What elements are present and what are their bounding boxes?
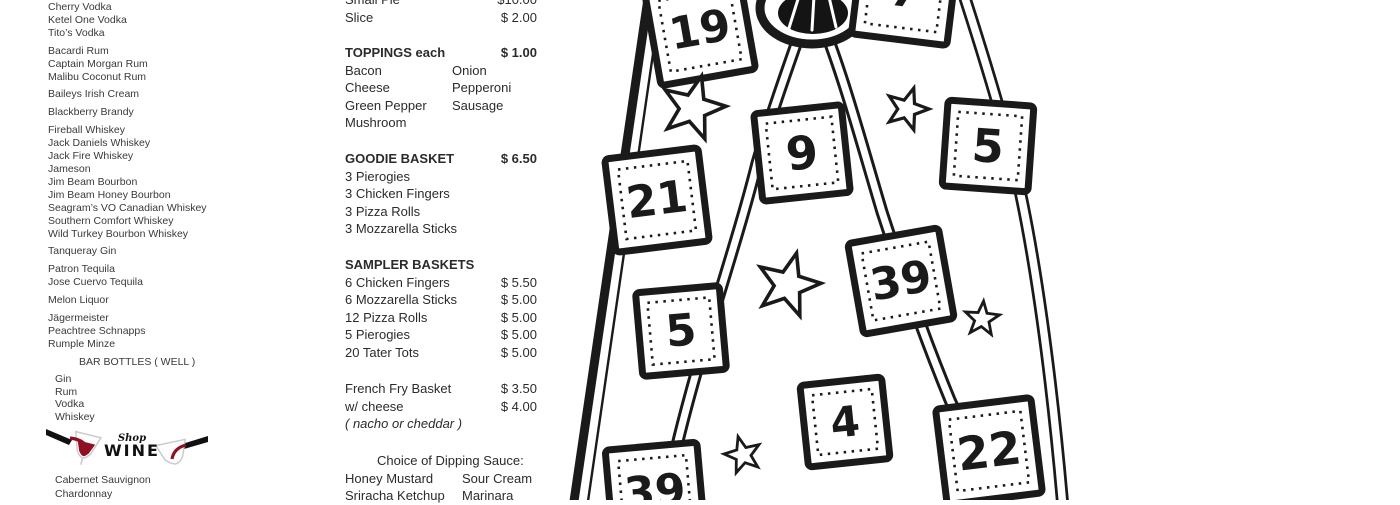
number-ribbons-illustration: 19 7 9 5 21 39 5: [555, 0, 1400, 500]
toppings-row: Green Pepper Sausage: [345, 97, 537, 115]
liquor-group-liquor: Melon Liquor: [48, 294, 313, 307]
liquor-item: Captain Morgan Rum: [48, 58, 313, 71]
section-heading: Choice of Dipping Sauce:: [377, 452, 537, 470]
liquor-item: Melon Liquor: [48, 294, 313, 307]
goodie-basket-section: GOODIE BASKET $ 6.50 3 Pierogies 3 Chick…: [345, 150, 537, 238]
menu-row: 6 Mozzarella Sticks $ 5.00: [345, 291, 537, 309]
topping: Green Pepper: [345, 97, 452, 115]
liquor-group-rum: Bacardi Rum Captain Morgan Rum Malibu Co…: [48, 45, 313, 84]
liquor-item: Tito’s Vodka: [48, 27, 313, 40]
wine-glasses-icon: Shop WINE: [46, 426, 208, 466]
item-label: 3 Pizza Rolls: [345, 203, 420, 221]
number-tag-39-bottom: 39: [605, 442, 705, 500]
liquor-item: Jack Daniels Whiskey: [48, 137, 313, 150]
star-icon: [751, 245, 827, 319]
item-price: $ 5.00: [501, 291, 537, 309]
item-price: $ 6.50: [501, 150, 537, 168]
ring-icon: [760, 0, 864, 44]
tag-number: 9: [783, 124, 820, 181]
liquor-item: Patron Tequila: [48, 263, 313, 276]
item-price: $ 5.00: [501, 344, 537, 362]
topping: Mushroom: [345, 114, 452, 132]
menu-row: 3 Chicken Fingers: [345, 185, 537, 203]
menu-row: 5 Pierogies $ 5.00: [345, 326, 537, 344]
well-bottle-list: Gin Rum Vodka Whiskey: [55, 373, 313, 425]
menu-row: French Fry Basket $ 3.50: [345, 380, 537, 398]
tag-number: 21: [624, 171, 691, 229]
sauce-row: Sriracha Ketchup Marinara: [345, 487, 537, 505]
item-label: French Fry Basket: [345, 380, 451, 398]
liquor-item: Jack Fire Whiskey: [48, 150, 313, 163]
item-label: 20 Tater Tots: [345, 344, 419, 362]
item-label: 3 Mozzarella Sticks: [345, 220, 457, 238]
item-price: $ 5.00: [501, 326, 537, 344]
well-item: Vodka: [55, 398, 313, 411]
liquor-group-schnapps: Jägermeister Peachtree Schnapps Rumple M…: [48, 312, 313, 351]
menu-row: 3 Mozzarella Sticks: [345, 220, 537, 238]
sauce: Sour Cream: [462, 470, 532, 488]
tag-number: 22: [954, 420, 1024, 481]
liquor-item: Blackberry Brandy: [48, 106, 313, 119]
star-icon: [882, 82, 934, 133]
liquor-item: Fireball Whiskey: [48, 124, 313, 137]
tag-number: 19: [665, 0, 734, 60]
topping: Pepperoni: [452, 79, 511, 97]
section-heading: TOPPINGS each: [345, 44, 445, 62]
topping: Sausage: [452, 97, 503, 115]
liquor-item: Bacardi Rum: [48, 45, 313, 58]
number-tag-4: 4: [800, 377, 890, 467]
item-price: $ 4.00: [501, 398, 537, 416]
liquor-group-whiskey: Fireball Whiskey Jack Daniels Whiskey Ja…: [48, 124, 313, 240]
well-item: Rum: [55, 386, 313, 399]
item-price: $ 5.50: [501, 274, 537, 292]
menu-row: 3 Pizza Rolls: [345, 203, 537, 221]
liquor-list: Cherry Vodka Ketel One Vodka Tito’s Vodk…: [48, 1, 313, 501]
wine-item: Cabernet Sauvignon: [55, 474, 313, 488]
topping: Onion: [452, 62, 487, 80]
sauce: Sriracha Ketchup: [345, 487, 462, 505]
section-heading-row: TOPPINGS each $ 1.00: [345, 44, 537, 62]
ribbons-and-number-tags-drawing: 19 7 9 5 21 39 5: [555, 0, 1400, 500]
item-label: 5 Pierogies: [345, 326, 410, 344]
liquor-item: Baileys Irish Cream: [48, 88, 313, 101]
number-tag-39-right: 39: [848, 228, 955, 335]
item-label: 3 Chicken Fingers: [345, 185, 450, 203]
menu-row: Small Pie $10.00: [345, 0, 537, 9]
item-label: 3 Pierogies: [345, 168, 410, 186]
number-tag-5-left: 5: [635, 285, 726, 376]
liquor-item: Jim Beam Honey Bourbon: [48, 189, 313, 202]
sauce: Honey Mustard: [345, 470, 462, 488]
number-tag-5-right: 5: [942, 100, 1034, 192]
liquor-item: Southern Comfort Whiskey: [48, 215, 313, 228]
liquor-item: Malibu Coconut Rum: [48, 71, 313, 84]
liquor-group-tequila: Patron Tequila Jose Cuervo Tequila: [48, 263, 313, 289]
wine-list: Cabernet Sauvignon Chardonnay: [55, 474, 313, 501]
item-price: $ 2.00: [501, 9, 537, 27]
star-icon: [721, 432, 765, 475]
tag-number: 5: [664, 304, 699, 357]
shop-wine-logo: Shop WINE: [46, 426, 313, 470]
item-price: $ 3.50: [501, 380, 537, 398]
well-item: Gin: [55, 373, 313, 386]
item-label: Small Pie: [345, 0, 400, 9]
topping: Bacon: [345, 62, 452, 80]
tag-number: 39: [866, 251, 935, 312]
sampler-baskets-section: SAMPLER BASKETS 6 Chicken Fingers $ 5.50…: [345, 256, 537, 362]
toppings-section: TOPPINGS each $ 1.00 Bacon Onion Cheese …: [345, 44, 537, 132]
toppings-row: Bacon Onion: [345, 62, 537, 80]
number-tag-19: 19: [644, 0, 755, 86]
section-heading-row: SAMPLER BASKETS: [345, 256, 537, 274]
menu-row: 3 Pierogies: [345, 168, 537, 186]
tag-number: 39: [622, 464, 687, 500]
menu-row: w/ cheese $ 4.00: [345, 398, 537, 416]
dipping-sauce-section: Choice of Dipping Sauce: Honey Mustard S…: [345, 452, 537, 505]
liquor-group-vodka: Cherry Vodka Ketel One Vodka Tito’s Vodk…: [48, 1, 313, 40]
sauce: Marinara: [462, 487, 513, 505]
item-price: $10.00: [497, 0, 537, 9]
toppings-row: Cheese Pepperoni: [345, 79, 537, 97]
number-tag-9: 9: [754, 105, 851, 202]
menu-row: Slice $ 2.00: [345, 9, 537, 27]
liquor-group-cream: Baileys Irish Cream: [48, 88, 313, 101]
tag-number: 5: [970, 118, 1006, 174]
food-menu: Small Pie $10.00 Slice $ 2.00 TOPPINGS e…: [345, 0, 537, 500]
menu-row: 20 Tater Tots $ 5.00: [345, 344, 537, 362]
liquor-item: Wild Turkey Bourbon Whiskey: [48, 228, 313, 241]
liquor-item: Cherry Vodka: [48, 1, 313, 14]
well-item: Whiskey: [55, 411, 313, 424]
tag-number: 4: [828, 396, 862, 448]
item-label: Slice: [345, 9, 373, 27]
fries-section: French Fry Basket $ 3.50 w/ cheese $ 4.0…: [345, 380, 537, 433]
liquor-item: Ketel One Vodka: [48, 14, 313, 27]
item-label: 6 Chicken Fingers: [345, 274, 450, 292]
fries-note: ( nacho or cheddar ): [345, 415, 537, 433]
number-tag-7: 7: [852, 0, 959, 45]
wine-item: Chardonnay: [55, 488, 313, 502]
liquor-item: Jose Cuervo Tequila: [48, 276, 313, 289]
liquor-item: Jim Beam Bourbon: [48, 176, 313, 189]
logo-word-text: WINE: [104, 441, 160, 460]
item-label: w/ cheese: [345, 398, 404, 416]
section-heading: SAMPLER BASKETS: [345, 256, 474, 274]
section-heading-row: GOODIE BASKET $ 6.50: [345, 150, 537, 168]
liquor-group-gin: Tanqueray Gin: [48, 245, 313, 258]
liquor-item: Jägermeister: [48, 312, 313, 325]
item-label: 6 Mozzarella Sticks: [345, 291, 457, 309]
bar-bottles-heading: BAR BOTTLES ( WELL ): [79, 356, 313, 369]
number-tag-21: 21: [605, 148, 710, 253]
liquor-item: Seagram’s VO Canadian Whiskey: [48, 202, 313, 215]
pizza-section: Small Pie $10.00 Slice $ 2.00: [345, 0, 537, 26]
toppings-row: Mushroom: [345, 114, 537, 132]
menu-row: 6 Chicken Fingers $ 5.50: [345, 274, 537, 292]
topping: Cheese: [345, 79, 452, 97]
menu-row: 12 Pizza Rolls $ 5.00: [345, 309, 537, 327]
number-tag-22: 22: [936, 398, 1043, 500]
item-price: $ 5.00: [501, 309, 537, 327]
sauce-row: Honey Mustard Sour Cream: [345, 470, 537, 488]
liquor-item: Tanqueray Gin: [48, 245, 313, 258]
liquor-item: Rumple Minze: [48, 338, 313, 351]
item-label: 12 Pizza Rolls: [345, 309, 427, 327]
star-icon: [964, 300, 1001, 335]
item-price: $ 1.00: [501, 44, 537, 62]
liquor-group-brandy: Blackberry Brandy: [48, 106, 313, 119]
liquor-item: Jameson: [48, 163, 313, 176]
section-heading: GOODIE BASKET: [345, 150, 454, 168]
liquor-item: Peachtree Schnapps: [48, 325, 313, 338]
